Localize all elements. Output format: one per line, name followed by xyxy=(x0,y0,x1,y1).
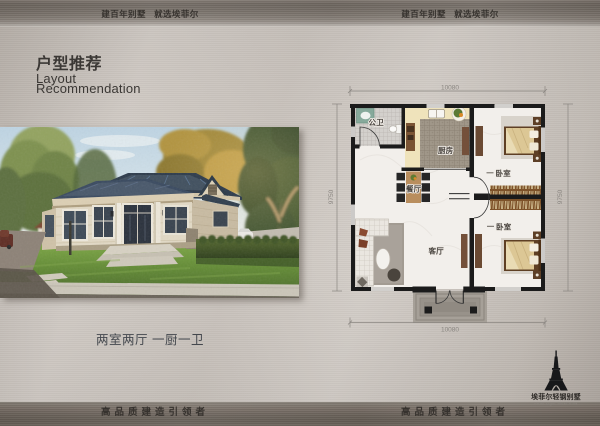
svg-text:9750: 9750 xyxy=(328,189,335,204)
svg-text:卧室: 卧室 xyxy=(496,222,512,232)
svg-text:客厅: 客厅 xyxy=(429,246,445,256)
svg-text:Eiffel Light Steel Villa: Eiffel Light Steel Villa xyxy=(534,401,577,405)
svg-text:埃菲尔轻钢别墅: 埃菲尔轻钢别墅 xyxy=(531,392,581,401)
svg-text:10080: 10080 xyxy=(441,85,459,92)
svg-text:10080: 10080 xyxy=(441,327,459,334)
svg-text:9750: 9750 xyxy=(557,189,564,204)
svg-text:厨房: 厨房 xyxy=(438,145,454,155)
svg-text:卧室: 卧室 xyxy=(496,168,512,178)
svg-text:餐厅: 餐厅 xyxy=(405,184,422,194)
svg-text:公卫: 公卫 xyxy=(369,118,385,127)
